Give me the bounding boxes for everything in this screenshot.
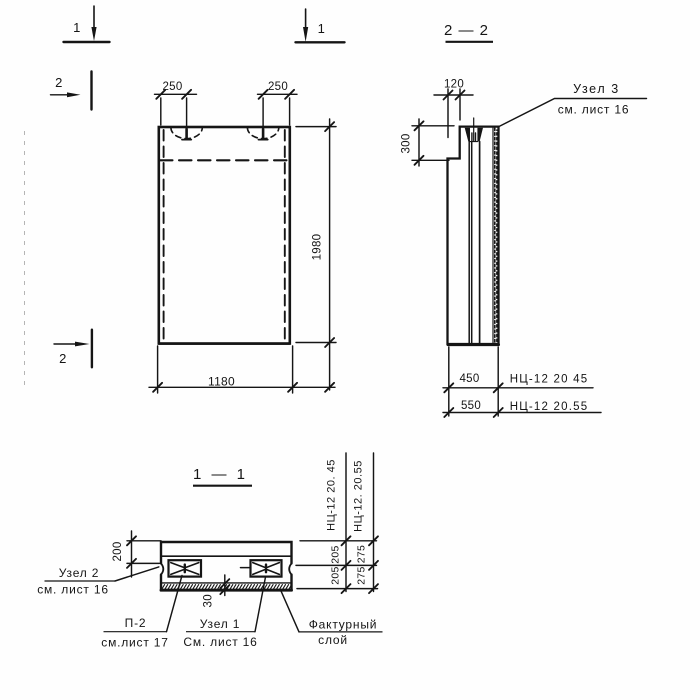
svg-text:300: 300 bbox=[401, 133, 413, 153]
svg-text:120: 120 bbox=[444, 79, 464, 91]
svg-text:450: 450 bbox=[459, 373, 479, 385]
svg-text:250: 250 bbox=[268, 81, 288, 93]
svg-text:см. лист 16: см. лист 16 bbox=[558, 103, 630, 117]
svg-text:Фактурный: Фактурный bbox=[309, 618, 378, 632]
svg-text:2: 2 bbox=[55, 75, 63, 90]
svg-text:Узел 1: Узел 1 bbox=[200, 617, 240, 631]
svg-text:см.лист 17: см.лист 17 bbox=[101, 636, 168, 650]
svg-text:275: 275 bbox=[356, 566, 368, 584]
svg-text:205: 205 bbox=[330, 545, 342, 563]
svg-text:слой: слой bbox=[318, 633, 348, 647]
svg-text:П-2: П-2 bbox=[125, 616, 147, 630]
svg-text:1180: 1180 bbox=[208, 375, 235, 389]
svg-text:НЦ-12 20.55: НЦ-12 20.55 bbox=[510, 401, 589, 413]
svg-text:2 — 2: 2 — 2 bbox=[444, 22, 489, 39]
svg-text:НЦ-12. 20.55: НЦ-12. 20.55 bbox=[353, 460, 365, 532]
svg-text:Узел 3: Узел 3 bbox=[573, 82, 620, 96]
svg-text:2: 2 bbox=[59, 351, 67, 366]
svg-text:275: 275 bbox=[356, 545, 368, 563]
svg-text:200: 200 bbox=[112, 541, 124, 561]
svg-text:1: 1 bbox=[318, 21, 326, 36]
svg-text:Узел 2: Узел 2 bbox=[59, 566, 99, 580]
svg-text:205: 205 bbox=[330, 566, 342, 584]
svg-text:См. лист 16: См. лист 16 bbox=[183, 635, 257, 649]
svg-text:1980: 1980 bbox=[312, 234, 324, 261]
svg-text:1: 1 bbox=[73, 20, 81, 35]
svg-text:250: 250 bbox=[162, 81, 182, 93]
svg-text:НЦ-12 20 45: НЦ-12 20 45 bbox=[510, 374, 589, 386]
svg-text:550: 550 bbox=[461, 400, 481, 412]
svg-text:30: 30 bbox=[203, 594, 215, 607]
svg-text:см. лист 16: см. лист 16 bbox=[37, 583, 109, 597]
svg-text:НЦ-12 20. 45: НЦ-12 20. 45 bbox=[326, 459, 338, 531]
svg-text:1 — 1: 1 — 1 bbox=[193, 466, 248, 483]
